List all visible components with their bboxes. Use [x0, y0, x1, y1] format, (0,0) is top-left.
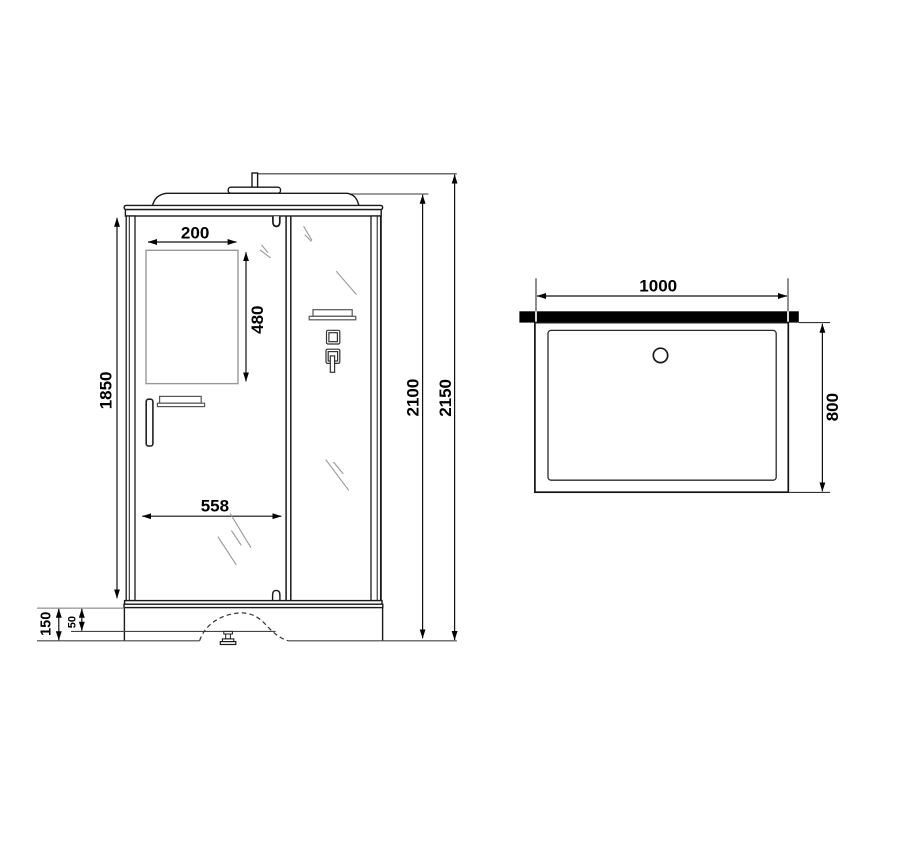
svg-text:2150: 2150: [436, 379, 455, 417]
svg-text:1850: 1850: [97, 371, 116, 409]
svg-text:50: 50: [67, 616, 79, 628]
svg-text:2100: 2100: [403, 379, 422, 417]
svg-text:150: 150: [39, 612, 55, 636]
svg-text:200: 200: [181, 223, 209, 242]
svg-text:800: 800: [823, 393, 842, 421]
svg-text:480: 480: [248, 306, 267, 334]
svg-text:1000: 1000: [639, 277, 677, 296]
svg-text:558: 558: [201, 496, 229, 515]
